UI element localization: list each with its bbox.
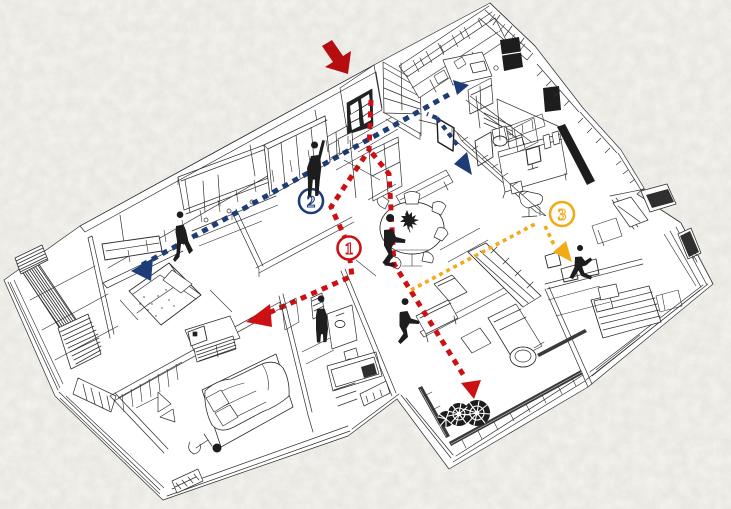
svg-text:1: 1 (345, 239, 354, 258)
svg-text:3: 3 (558, 205, 567, 224)
